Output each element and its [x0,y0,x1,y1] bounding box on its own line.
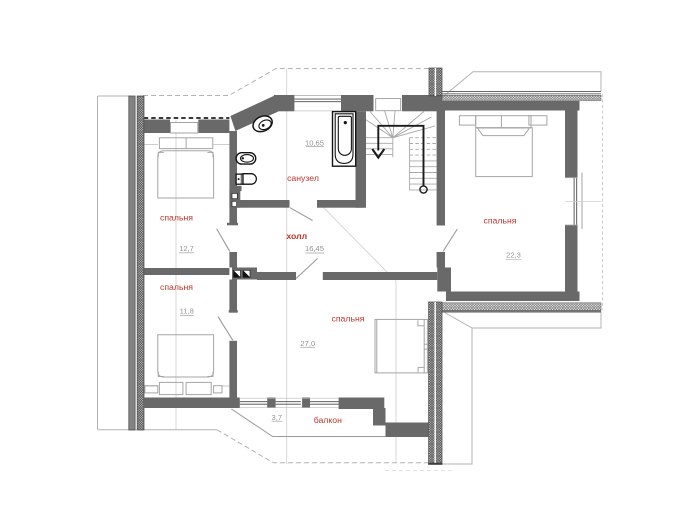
svg-text:10,65: 10,65 [305,138,324,147]
svg-text:спальня: спальня [160,282,193,292]
svg-text:холл: холл [286,231,307,241]
svg-text:27,0: 27,0 [300,339,315,348]
svg-text:спальня: спальня [332,313,365,323]
svg-text:спальня: спальня [484,215,517,225]
svg-text:санузел: санузел [287,173,319,183]
svg-text:спальня: спальня [160,212,193,222]
svg-text:3,7: 3,7 [272,413,283,422]
svg-text:16,45: 16,45 [305,244,324,253]
svg-text:22,3: 22,3 [506,251,521,260]
svg-text:11,8: 11,8 [180,307,194,316]
svg-text:балкон: балкон [314,415,342,425]
svg-text:12,7: 12,7 [179,244,194,253]
